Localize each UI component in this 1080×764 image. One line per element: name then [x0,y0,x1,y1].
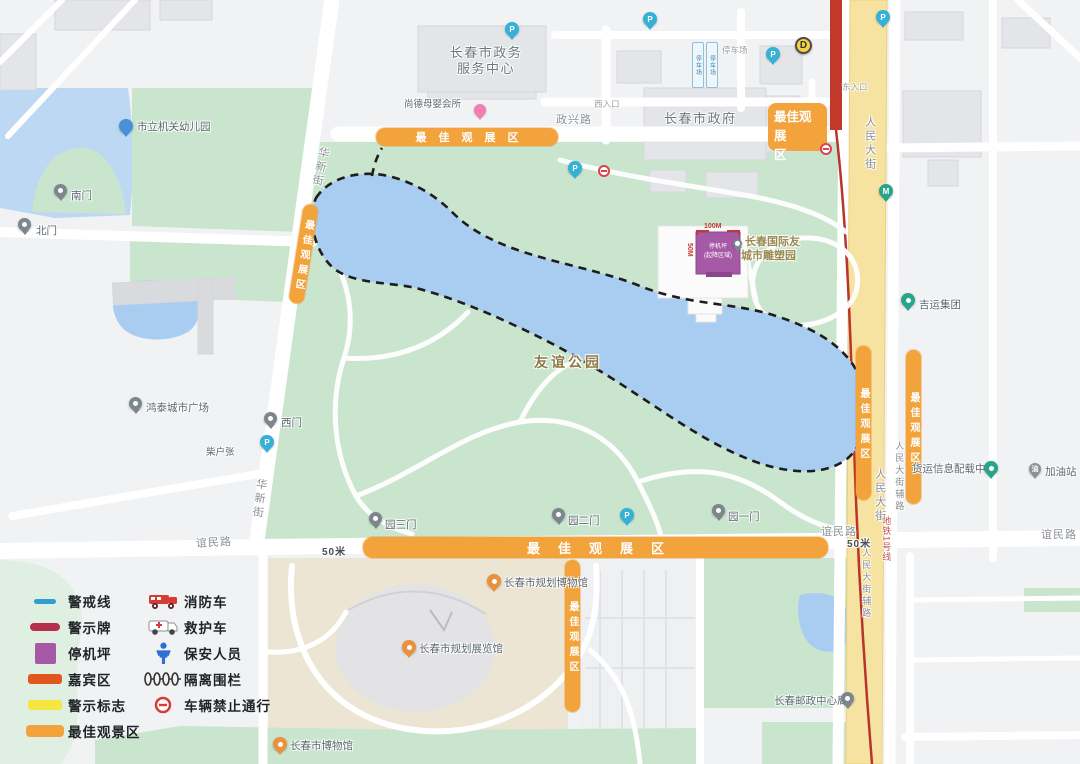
map-label: 谊民路 [196,536,233,552]
map-label: 北门 [36,225,57,238]
map-label: 加油站 [1045,466,1077,479]
legend-item-label: 隔离围栏 [184,669,242,689]
map-label: 城市雕塑园 [741,250,796,264]
legend-item: 警示牌 [22,614,141,640]
kindergarten-pin[interactable] [119,119,133,133]
map-label: 柴户张 [206,447,235,459]
map-label: 停机坪 (起降区域) [698,243,738,261]
helipad-swatch [22,643,68,664]
security-guard-icon [142,642,184,665]
map-label: 东入口 [842,82,868,93]
map-label: 长春市规划博物馆 [504,577,588,590]
sculpture-park-pin[interactable] [733,239,742,248]
fire-truck-icon [142,591,184,611]
transit-poi-pin[interactable] [901,293,915,307]
parking-pin[interactable]: P [260,435,274,449]
map-label: 政兴路 [556,114,592,128]
gate-pin[interactable] [712,504,725,517]
legend-item-label: 嘉宾区 [68,669,112,689]
map-label: 友谊公园 [534,354,602,372]
best-viewing-swatch [22,725,68,737]
map-label: 园一门 [728,511,760,524]
map-label: 市立机关幼儿园 [137,121,211,134]
map-label: 100M [704,223,722,232]
map-label: 长春市政务 服务中心 [441,45,531,78]
legend-item-label: 警戒线 [68,591,112,611]
legend-item: 隔离围栏 [142,666,271,692]
legend-item-label: 警示牌 [68,617,112,637]
map-label: 南门 [71,190,92,203]
legend-item: 嘉宾区 [22,666,141,692]
map-label: 鸿泰城市广场 [146,402,209,415]
warning-sign-swatch [22,623,68,631]
map-label: 谊民路 [1041,529,1077,543]
map-label: 园三门 [385,519,417,532]
warning-mark-swatch [22,700,68,710]
gate-pin[interactable] [18,218,31,231]
viewing-zone-east-2: 最佳观展区 [906,350,921,504]
parking-pin[interactable]: P [568,161,582,175]
parking-pin[interactable]: P [620,508,634,522]
map-label: 50米 [322,547,346,560]
parking-pin[interactable]: P [505,22,519,36]
event-map: 市立机关幼儿园尚德母婴会所长春市政务 服务中心长春市政府政兴路西入口东入口停车场… [0,0,1080,764]
legend-item-label: 警示标志 [68,695,126,715]
ambulance-icon [142,617,184,637]
legend-item: 警示标志 [22,692,141,718]
viewing-zone-north: 最佳观展区 [376,128,558,146]
gate-pin[interactable] [369,512,382,525]
no-entry-icon[interactable] [820,143,832,155]
no-vehicles-icon [142,696,184,714]
map-label: 长春市博物馆 [290,740,353,753]
legend-item: 消防车 [142,588,271,614]
map-label: 西入口 [594,99,620,110]
legend-item-label: 车辆禁止通行 [184,695,271,715]
map-label: 长春国际友 [745,236,800,250]
legend-item: 救护车 [142,614,271,640]
map-label: 西门 [281,417,302,430]
legend-item: 保安人员 [142,640,271,666]
isolation-fence-icon [142,671,184,687]
map-label: 50M [684,243,693,265]
station-d-marker[interactable]: D [795,37,812,54]
legend-item-label: 停机坪 [68,643,112,663]
cordon-line-swatch [22,599,68,604]
gate-pin[interactable] [54,184,67,197]
map-label: 人民大街辅路 [893,441,904,533]
transit-poi-pin[interactable]: M [879,184,893,198]
map-label: 人民大街 [862,116,876,196]
legend-item: 停机坪 [22,640,141,666]
museum-pin[interactable] [273,737,287,751]
viewing-zone-northeast-box: 最佳观展 区 [768,103,827,151]
museum-pin[interactable] [487,574,501,588]
parking-lot-sign: 停车场 [706,42,718,88]
viewing-zone-south: 最佳观展区 [363,537,828,558]
legend-item: 警戒线 [22,588,141,614]
shop-pin[interactable] [474,104,486,116]
gate-pin[interactable] [552,508,565,521]
map-label: 地铁1号线 [880,516,891,574]
map-label: 园二门 [568,515,600,528]
guest-area-swatch [22,674,68,684]
gas-station-pin[interactable]: 油 [1029,463,1041,475]
gate-pin[interactable] [264,412,277,425]
map-label: 停车场 [722,45,748,56]
legend-item-label: 消防车 [184,591,228,611]
legend-item-label: 救护车 [184,617,228,637]
legend-item: 最佳观景区 [22,718,141,744]
legend-item-label: 最佳观景区 [68,721,141,741]
map-label: 长春邮政中心局 [774,695,848,708]
legend-right-column: 消防车救护车保安人员隔离围栏车辆禁止通行 [142,588,271,718]
legend-item: 车辆禁止通行 [142,692,271,718]
map-label: 长春市政府 [664,111,737,127]
no-entry-icon[interactable] [598,165,610,177]
museum-pin[interactable] [402,640,416,654]
map-label: 长春市规划展览馆 [419,643,503,656]
transit-poi-pin[interactable] [984,461,998,475]
legend-left-column: 警戒线警示牌停机坪嘉宾区警示标志最佳观景区 [22,588,141,744]
parking-pin[interactable]: P [643,12,657,26]
legend-item-label: 保安人员 [184,643,242,663]
map-label: 谊民路 [821,526,857,540]
gate-pin[interactable] [841,692,854,705]
map-label: 人民大街辅路 [860,548,871,640]
map-label: 吉运集团 [919,299,961,312]
gate-pin[interactable] [129,397,142,410]
map-label: 尚德母婴会所 [404,99,461,111]
viewing-zone-east-1: 最佳观展区 [856,346,871,500]
parking-lot-sign: 停车场 [692,42,704,88]
parking-pin[interactable]: P [766,47,780,61]
parking-pin[interactable]: P [876,10,890,24]
